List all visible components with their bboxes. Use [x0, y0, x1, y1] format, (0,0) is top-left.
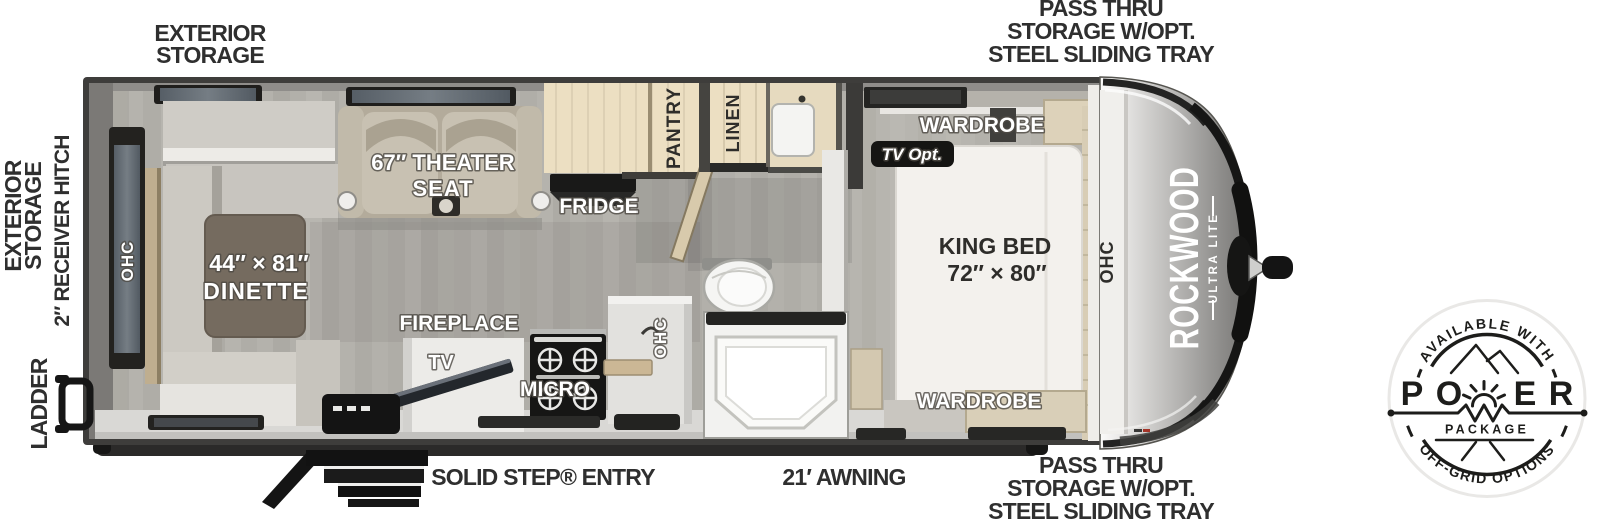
svg-text:PANTRY: PANTRY: [664, 87, 685, 169]
svg-text:KING BED: KING BED: [939, 233, 1051, 259]
svg-text:STORAGE: STORAGE: [156, 42, 264, 68]
svg-text:OHC: OHC: [1097, 241, 1117, 284]
svg-text:72″ × 80″: 72″ × 80″: [947, 260, 1046, 286]
svg-text:ROCKWOOD: ROCKWOOD: [1162, 167, 1207, 350]
svg-text:FIREPLACE: FIREPLACE: [399, 312, 518, 335]
svg-text:R: R: [1549, 375, 1574, 413]
svg-text:P: P: [1401, 375, 1424, 413]
svg-text:LINEN: LINEN: [723, 94, 743, 153]
svg-text:OHC: OHC: [651, 318, 670, 359]
svg-text:2″ RECEIVER HITCH: 2″ RECEIVER HITCH: [51, 135, 74, 326]
svg-text:O: O: [1436, 375, 1462, 413]
svg-text:ULTRA LITE: ULTRA LITE: [1208, 213, 1220, 304]
svg-text:LADDER: LADDER: [26, 357, 52, 449]
svg-text:STORAGE: STORAGE: [20, 162, 46, 270]
svg-text:SEAT: SEAT: [412, 176, 473, 201]
svg-text:DINETTE: DINETTE: [203, 278, 308, 304]
svg-text:STEEL SLIDING TRAY: STEEL SLIDING TRAY: [988, 498, 1214, 520]
svg-text:E: E: [1514, 375, 1537, 413]
svg-text:STEEL SLIDING TRAY: STEEL SLIDING TRAY: [988, 41, 1214, 67]
svg-text:PACKAGE: PACKAGE: [1445, 423, 1529, 437]
svg-text:21′ AWNING: 21′ AWNING: [782, 464, 905, 490]
svg-text:OHC: OHC: [118, 241, 137, 282]
svg-text:WARDROBE: WARDROBE: [917, 390, 1042, 413]
svg-text:44″ × 81″: 44″ × 81″: [209, 250, 308, 276]
svg-text:TV Opt.: TV Opt.: [882, 145, 942, 164]
svg-text:WARDROBE: WARDROBE: [920, 114, 1045, 137]
svg-text:67″ THEATER: 67″ THEATER: [371, 150, 514, 175]
svg-text:SOLID STEP® ENTRY: SOLID STEP® ENTRY: [431, 464, 655, 490]
svg-text:MICRO: MICRO: [520, 378, 590, 401]
svg-text:FRIDGE: FRIDGE: [559, 195, 638, 218]
svg-text:TV: TV: [428, 352, 454, 374]
